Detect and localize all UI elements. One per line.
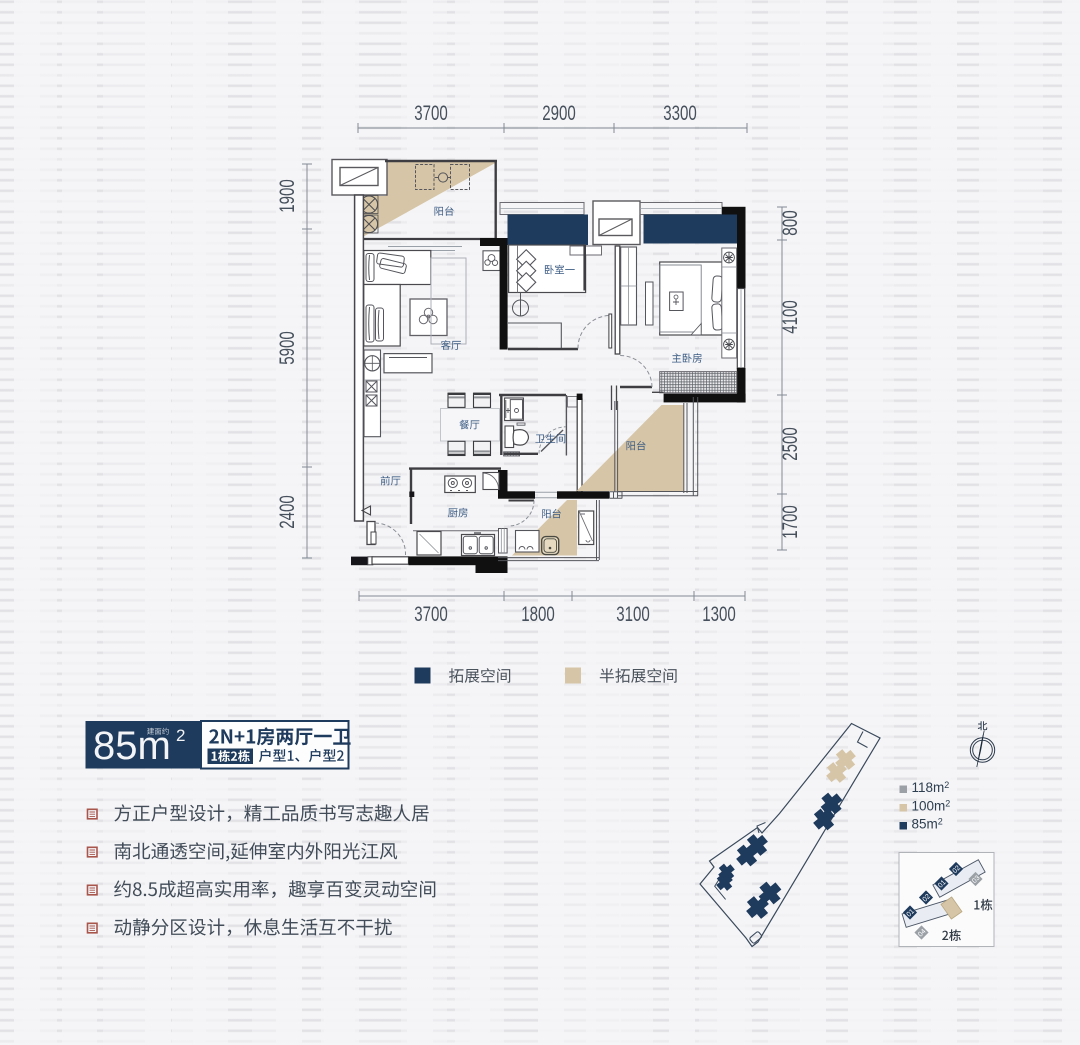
svg-text:800: 800 — [779, 210, 802, 236]
svg-text:3700: 3700 — [414, 102, 448, 125]
svg-text:85m2: 85m2 — [912, 816, 943, 831]
svg-text:1800: 1800 — [521, 603, 555, 626]
svg-text:1900: 1900 — [276, 179, 299, 213]
svg-text:4100: 4100 — [779, 300, 802, 334]
svg-text:5900: 5900 — [276, 331, 299, 365]
svg-text:118m2: 118m2 — [912, 780, 950, 795]
svg-text:1700: 1700 — [779, 505, 802, 539]
svg-text:2500: 2500 — [779, 427, 802, 461]
svg-text:3300: 3300 — [663, 102, 697, 125]
svg-text:100m2: 100m2 — [912, 798, 951, 813]
svg-text:2400: 2400 — [276, 495, 299, 529]
svg-text:3100: 3100 — [616, 603, 650, 626]
svg-text:2: 2 — [176, 726, 185, 745]
svg-text:1300: 1300 — [702, 603, 736, 626]
svg-text:2900: 2900 — [542, 102, 576, 125]
svg-text:3700: 3700 — [414, 603, 448, 626]
